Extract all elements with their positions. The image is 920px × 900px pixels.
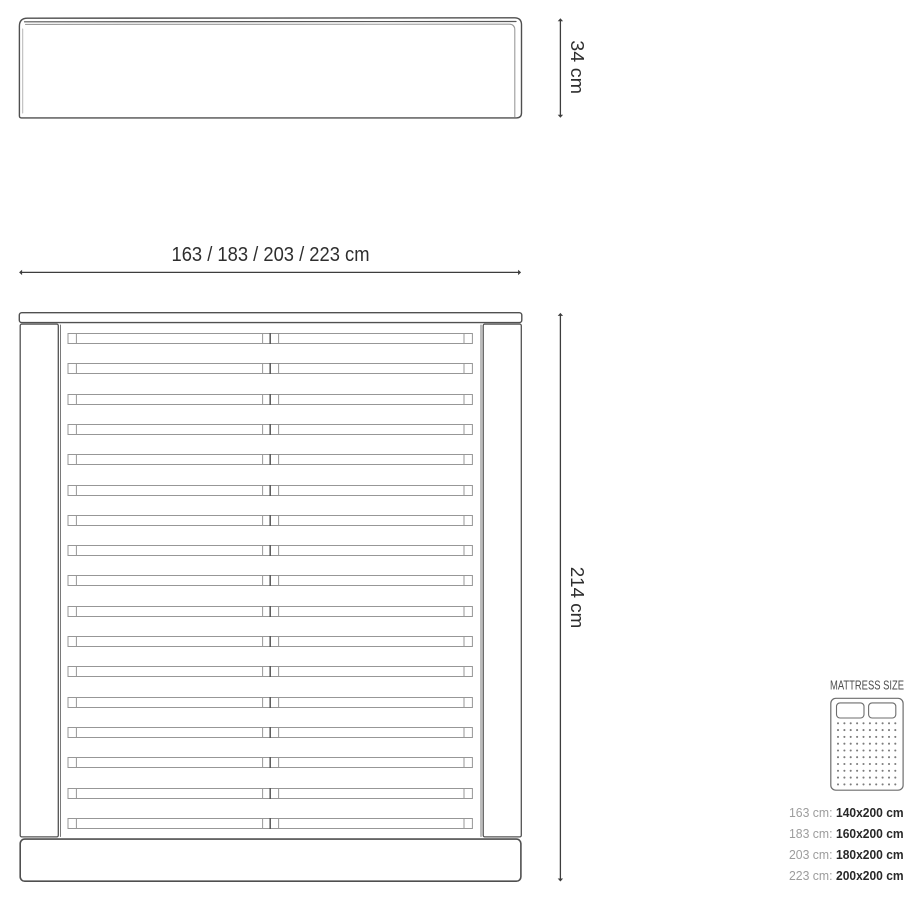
svg-text:34 cm: 34 cm [567,40,588,94]
svg-text:203 cm:: 203 cm: [789,847,833,862]
svg-text:163 cm:: 163 cm: [789,805,833,820]
svg-text:223 cm:: 223 cm: [789,868,833,883]
svg-text:163 / 183 / 203 / 223 cm: 163 / 183 / 203 / 223 cm [172,244,370,266]
svg-text:200x200 cm: 200x200 cm [836,868,904,883]
svg-text:160x200 cm: 160x200 cm [836,826,904,841]
svg-text:183 cm:: 183 cm: [789,826,833,841]
svg-text:214 cm: 214 cm [567,567,588,629]
svg-text:140x200 cm: 140x200 cm [836,805,904,820]
svg-text:MATTRESS SIZE: MATTRESS SIZE [830,678,904,692]
svg-text:180x200 cm: 180x200 cm [836,847,904,862]
